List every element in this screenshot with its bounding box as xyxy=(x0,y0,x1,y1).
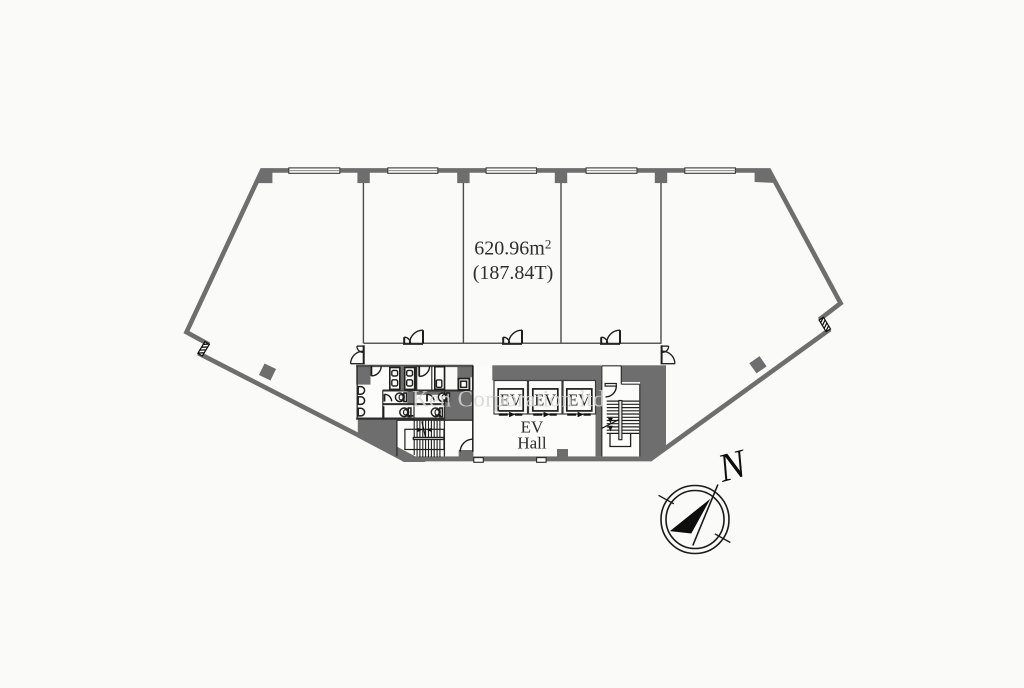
svg-text:(187.84T): (187.84T) xyxy=(473,262,554,284)
svg-text:620.96m2: 620.96m2 xyxy=(474,237,551,260)
svg-text:Hall: Hall xyxy=(517,433,547,452)
svg-text:Ken Corporation ltd: Ken Corporation ltd xyxy=(412,387,605,412)
